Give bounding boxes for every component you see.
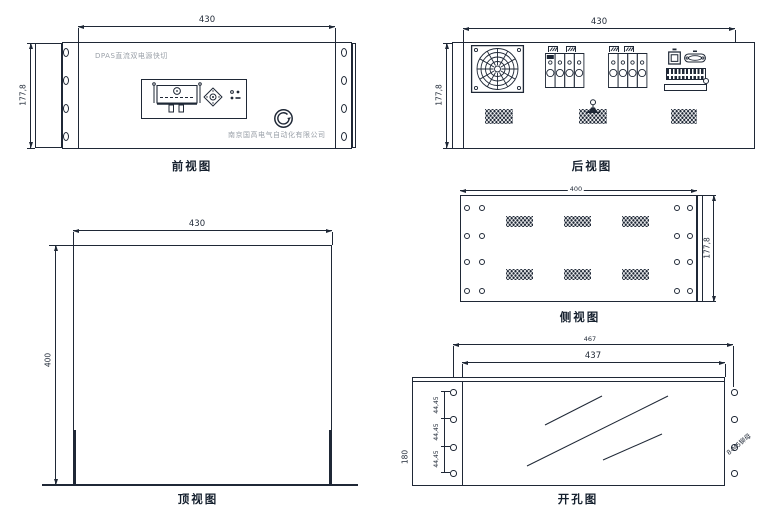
- front-ext-left: [78, 28, 79, 42]
- cutout-ext-437-right: [725, 364, 726, 377]
- side-height-dim-label: 177,8: [703, 235, 711, 260]
- rear-ext-left: [463, 30, 464, 42]
- front-left-strip-line: [78, 42, 79, 149]
- front-ext-right: [335, 28, 336, 42]
- lcd-screen-icon: [153, 83, 202, 112]
- mounting-hole: [63, 76, 69, 85]
- top-depth-dim-label: 400: [44, 351, 52, 369]
- nav-pad-icon: [204, 88, 222, 106]
- circuit-breaker-group: [608, 53, 648, 88]
- mounting-hole: [341, 132, 347, 141]
- screw-hole: [464, 205, 470, 211]
- screw-hole: [674, 259, 680, 265]
- fan-icon: [471, 45, 524, 93]
- vent-pattern: [622, 216, 649, 227]
- front-ext-bottom: [27, 148, 35, 149]
- side-width-dim-label: 400: [568, 186, 584, 193]
- screw-hole: [479, 288, 485, 294]
- screw-hole: [479, 205, 485, 211]
- usb-port-icon: [668, 48, 681, 65]
- side-panel-body: [460, 195, 697, 302]
- rear-width-dim-line: [463, 28, 735, 29]
- side-view-caption: 侧视图: [560, 309, 601, 325]
- engineering-drawing-sheet: 430 177,8 DPAS直流双电源快切 南京国高电气自动化有限公司: [0, 0, 762, 517]
- terminal-strip-icon: [666, 68, 706, 80]
- rack-ear-left: [73, 430, 76, 485]
- mounting-hole: [341, 48, 347, 57]
- top-width-dim-line: [73, 230, 332, 231]
- cutout-outer-dim-label: 467: [582, 336, 598, 343]
- cutout-height-dim-label: 180: [401, 448, 409, 466]
- side-height-dim-line: [713, 195, 714, 302]
- mounting-hole: [63, 104, 69, 113]
- hole-spec-note: 8-M5铆母: [724, 430, 753, 456]
- vent-pattern: [564, 269, 591, 280]
- vent-pattern: [564, 216, 591, 227]
- screw-hole: [687, 288, 693, 294]
- opening-diagonal-marks: [412, 377, 725, 486]
- screw-hole: [479, 233, 485, 239]
- panel-hole: [731, 416, 738, 423]
- terminal-clamp-icon: [608, 44, 620, 52]
- mounting-hole: [341, 104, 347, 113]
- vent-pattern: [485, 109, 513, 124]
- top-view-caption: 顶视图: [178, 491, 219, 507]
- cutout-ext-437-left: [462, 364, 463, 377]
- display-panel-graphics: [142, 80, 246, 118]
- mounting-hole: [63, 132, 69, 141]
- mounting-hole: [63, 48, 69, 57]
- rear-width-dim-label: 430: [589, 18, 609, 27]
- vent-pattern: [622, 269, 649, 280]
- label-plate: [664, 84, 707, 91]
- circuit-breaker-group: [545, 53, 585, 88]
- top-depth-dim-line: [55, 245, 56, 485]
- front-right-flange: [352, 43, 356, 148]
- top-ext-right: [332, 232, 333, 245]
- led-indicator-icon: [231, 91, 241, 100]
- front-left-flange: [35, 43, 62, 148]
- screw-hole: [464, 259, 470, 265]
- front-height-dim-label: 177,8: [19, 82, 27, 107]
- terminal-clamp-icon: [623, 44, 635, 52]
- cutout-ext-467-right: [733, 346, 734, 387]
- cutout-inner-dim-label: 437: [583, 352, 603, 361]
- front-panel-line: [42, 484, 358, 486]
- rear-left-strip-line: [463, 42, 464, 149]
- rear-height-dim-label: 177,8: [435, 82, 443, 107]
- screw-hole: [464, 233, 470, 239]
- db9-connector-icon: [684, 50, 706, 63]
- front-width-dim-line: [78, 26, 335, 27]
- vent-pattern: [579, 109, 607, 124]
- rear-height-dim-line: [446, 43, 447, 148]
- front-view-caption: 前视图: [172, 158, 213, 174]
- rear-view-caption: 后视图: [572, 158, 613, 174]
- screw-hole: [687, 233, 693, 239]
- mounting-hole: [341, 76, 347, 85]
- panel-hole: [731, 470, 738, 477]
- cutout-outer-dim-line: [453, 344, 733, 345]
- front-right-strip-line: [335, 42, 336, 149]
- screw-hole: [687, 259, 693, 265]
- front-height-dim-line: [30, 43, 31, 148]
- vent-pattern: [506, 269, 533, 280]
- front-width-dim-label: 430: [197, 16, 217, 25]
- company-name-text: 南京国高电气自动化有限公司: [228, 132, 326, 139]
- panel-hole: [731, 389, 738, 396]
- product-title-text: DPAS直流双电源快切: [95, 53, 168, 60]
- rack-ear-right: [329, 430, 332, 485]
- vent-pattern: [671, 109, 697, 124]
- screw-hole: [674, 288, 680, 294]
- screw-hole: [674, 205, 680, 211]
- screw-hole: [687, 205, 693, 211]
- top-panel-body: [73, 245, 332, 485]
- rear-ext-bottom: [443, 148, 452, 149]
- terminal-clamp-icon: [547, 44, 559, 52]
- screw-hole: [479, 259, 485, 265]
- top-ext-left: [73, 232, 74, 245]
- terminal-clamp-icon: [565, 44, 577, 52]
- cutout-inner-dim-line: [462, 362, 725, 363]
- screw-hole: [674, 233, 680, 239]
- cutout-view-caption: 开孔图: [558, 491, 599, 507]
- vent-pattern: [506, 216, 533, 227]
- top-width-dim-label: 430: [187, 220, 207, 229]
- brand-logo-icon: [273, 108, 294, 129]
- rear-ext-right: [735, 30, 736, 42]
- screw-hole: [464, 288, 470, 294]
